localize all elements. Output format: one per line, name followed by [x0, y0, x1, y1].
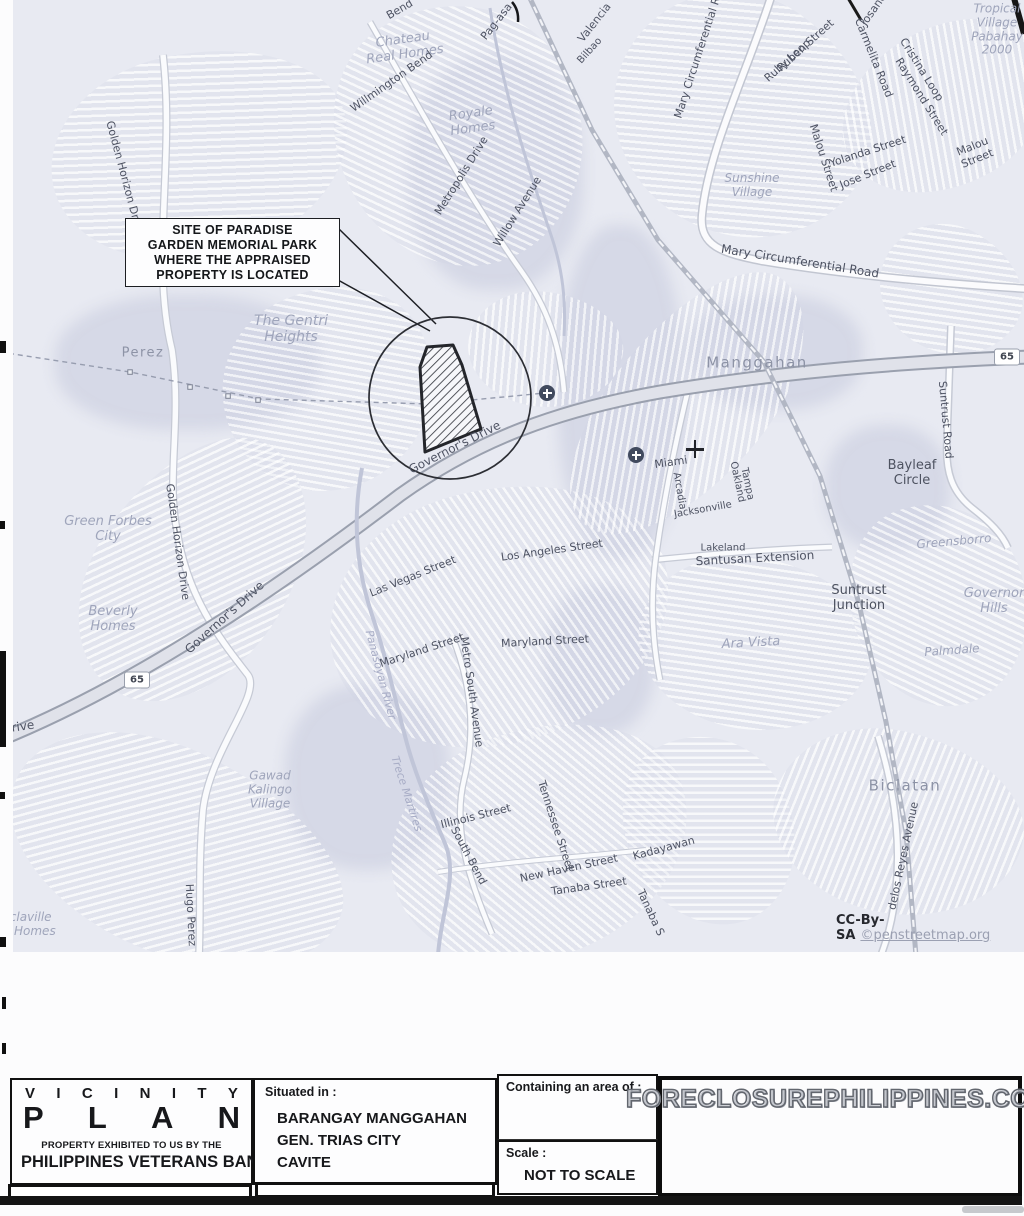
scan-edge-mark [0, 792, 5, 799]
map-label: Sunshine Village [724, 172, 779, 200]
highway-65-badge: 65 [994, 349, 1020, 366]
plan-title-word1: VICINITY [25, 1085, 238, 1102]
map-label: rive [11, 719, 35, 736]
callout-text-line: SITE OF PARADISE [126, 223, 339, 238]
map-label: Miami [654, 454, 689, 471]
map-label: Suntrust Road [935, 381, 954, 460]
scale-value: NOT TO SCALE [524, 1167, 649, 1184]
situated-in-label: Situated in : [265, 1085, 485, 1099]
map-label: delos Reyes Avenue [886, 801, 921, 911]
map-label: Governor's Drive [183, 579, 267, 657]
map-label: Arcadia [670, 471, 688, 510]
map-label: Ara Vista [721, 635, 780, 653]
location-line-province: CAVITE [277, 1152, 485, 1174]
map-label: Hugo Perez [182, 884, 198, 947]
scan-smudge [962, 1206, 1024, 1213]
map-label: Mary Circumferential Ro [672, 0, 725, 120]
bank-name: PHILIPPINES VETERANS BANK [21, 1153, 242, 1172]
callout-text-line: PROPERTY IS LOCATED [126, 268, 339, 283]
callout-text-line: GARDEN MEMORIAL PARK [126, 238, 339, 253]
callout-box: SITE OF PARADISEGARDEN MEMORIAL PARKWHER… [125, 218, 340, 287]
map-label: Tropical Village Pabahay 2000 [971, 2, 1023, 57]
page-left-margin [0, 0, 13, 952]
map-label: Maryland Street [501, 633, 589, 650]
scan-edge-mark [2, 1043, 6, 1054]
hospital-icon [539, 385, 555, 401]
map-label: The Gentri Heights [254, 313, 328, 345]
map-label: Willow Avenue [491, 175, 544, 249]
openstreetmap-link[interactable]: ©penstreetmap.org [860, 928, 990, 943]
map-attribution: CC-By-SA©penstreetmap.org [836, 913, 1024, 943]
map-label: Trece Martires [388, 755, 424, 834]
scan-edge-mark [0, 937, 6, 947]
map-label: Green Forbes City [64, 515, 152, 545]
title-block-scale-cell: Scale : NOT TO SCALE [497, 1140, 658, 1195]
scan-edge-mark [2, 997, 6, 1009]
location-line-barangay: BARANGAY MANGGAHAN [277, 1108, 485, 1130]
hospital-icon [628, 447, 644, 463]
map-label: Chateau Real Homes [363, 28, 444, 68]
map-label: Metropolis Drive [433, 135, 491, 218]
map-label: Governor Hills [964, 587, 1024, 617]
map-label: Ruby Loop [762, 37, 813, 85]
title-block-bottom-bar [0, 1196, 1022, 1205]
scan-edge-mark [0, 651, 6, 747]
map-label: Palmdale [924, 642, 980, 660]
map-label: Maryland Street [378, 631, 466, 670]
title-block-empty-cell [658, 1076, 1022, 1197]
map-label: Bayleaf Circle [888, 459, 937, 489]
map-label: Tanaba Street [550, 875, 627, 898]
map-label: Los Angeles Street [500, 538, 603, 565]
map-label: Perez [122, 347, 165, 362]
title-block-location-cell: Situated in : BARANGAY MANGGAHAN GEN. TR… [253, 1078, 497, 1185]
map-label: Mary Circumferential Road [720, 243, 880, 282]
map-label: Carmelita Road [851, 16, 894, 99]
map-label: Golden Horizon Drive [163, 483, 192, 601]
area-label: Containing an area of : [506, 1080, 649, 1094]
map-label: Bend [385, 0, 416, 23]
map-label: Panasoyan River [362, 629, 398, 721]
map-label: Las Vegas Street [368, 554, 458, 600]
location-line-city: GEN. TRIAS CITY [277, 1130, 485, 1152]
vicinity-map[interactable]: BendPag-asaChateau Real HomesWillmington… [0, 0, 1024, 952]
map-label: Royale Homes [448, 104, 497, 140]
scale-label: Scale : [506, 1146, 649, 1160]
callout-text-line: WHERE THE APPRAISED [126, 253, 339, 268]
map-label: Beverly Homes [88, 605, 137, 635]
map-label: Malou Street [948, 132, 1003, 174]
map-label: Suntrust Junction [831, 584, 886, 614]
map-label: Metro South Avenue [457, 636, 485, 748]
crosshair-icon [686, 440, 704, 458]
map-label: Governor's Drive [407, 419, 503, 477]
map-label: Manggahan [706, 354, 808, 371]
map-label: Tanaba S [634, 888, 666, 938]
map-labels-layer: BendPag-asaChateau Real HomesWillmington… [0, 0, 1024, 952]
plan-subtitle: PROPERTY EXHIBITED TO US BY THE [21, 1140, 242, 1151]
map-label: Gawad Kalingo Village [248, 769, 292, 810]
map-label: Greensborro [916, 532, 992, 552]
map-label: Biclatan [869, 777, 942, 794]
map-label: Pag-asa [479, 1, 515, 43]
plan-title-word2: PLAN [23, 1102, 240, 1133]
map-label: South Bend [447, 825, 488, 887]
scan-edge-mark [0, 341, 6, 353]
scan-edge-mark [0, 521, 5, 529]
highway-65-badge: 65 [124, 672, 150, 689]
map-label: Tennessee Street [534, 779, 575, 873]
title-block-area-cell: Containing an area of : [497, 1074, 658, 1140]
map-label: Kadayawan [632, 835, 697, 864]
scanned-vicinity-plan-page: BendPag-asaChateau Real HomesWillmington… [0, 0, 1024, 1216]
title-block-plan-cell: VICINITY PLAN PROPERTY EXHIBITED TO US B… [10, 1078, 253, 1185]
map-label: Illinois Street [440, 802, 513, 832]
